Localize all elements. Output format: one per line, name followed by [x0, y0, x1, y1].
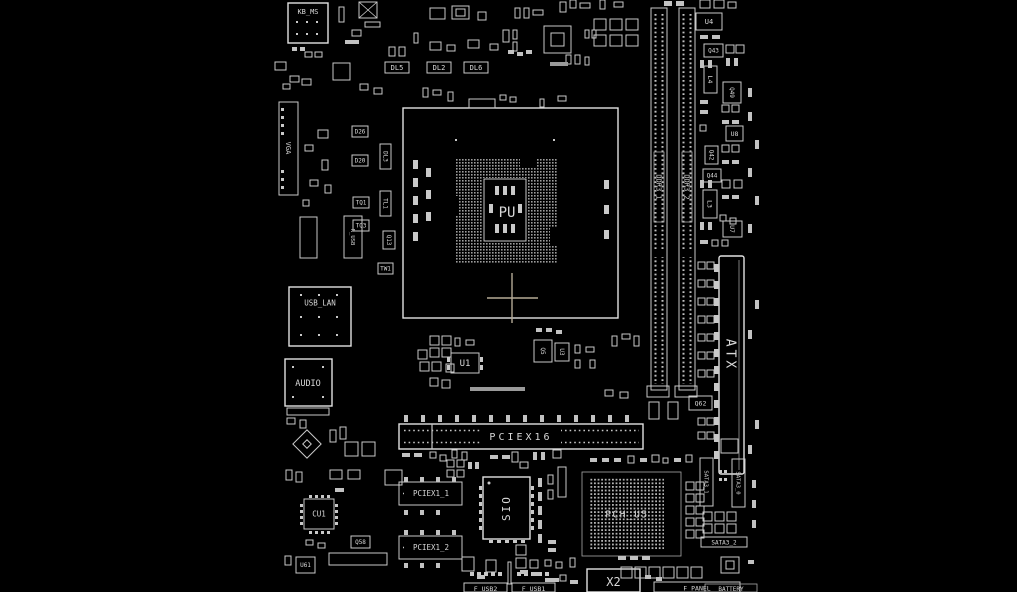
svg-text:U7: U7	[728, 225, 736, 233]
sata-ports: SATA3_1 SATA3_0 SATA3_2	[700, 458, 747, 547]
part-tq1: TQ1	[353, 197, 369, 208]
audio-connector: AUDIO	[285, 359, 332, 415]
part-q42: Q42	[705, 146, 718, 164]
svg-text:Q13: Q13	[385, 235, 392, 246]
part-q43: Q43	[704, 44, 723, 57]
svg-text:Q42: Q42	[707, 150, 714, 161]
sio-chip: SIO	[479, 477, 534, 543]
u61-chip: U61	[296, 557, 315, 573]
svg-text:DL5: DL5	[391, 64, 404, 72]
part-q58: Q58	[351, 536, 370, 548]
u61-label: U61	[300, 562, 311, 569]
ddr3-2-label: DDR3_2	[683, 174, 691, 199]
svg-text:Q44: Q44	[707, 173, 718, 180]
battery-holder: BATTERY	[705, 584, 757, 592]
part-q13: Q13	[383, 231, 395, 249]
atx-connector: ATX	[714, 256, 744, 474]
svg-text:U8: U8	[731, 130, 739, 138]
u1-label: U1	[460, 359, 471, 369]
passive-components-fill	[292, 1, 759, 584]
part-l4: L4	[704, 66, 717, 93]
f-panel-label: F_PANEL	[683, 584, 710, 592]
part-tl1: TL1	[380, 191, 391, 216]
sio-label: SIO	[500, 495, 513, 521]
crosshair-icon	[487, 273, 538, 323]
svg-text:DL2: DL2	[433, 64, 446, 72]
x2-label: X2	[606, 575, 620, 589]
svg-text:Q43: Q43	[708, 48, 719, 55]
svg-text:TW1: TW1	[380, 266, 391, 273]
ddr3-1-label: DDR3_1	[655, 174, 663, 199]
svg-text:DL6: DL6	[470, 64, 483, 72]
ddr3-slot-2: DDR3_2	[675, 8, 697, 397]
pciex1-1-slot: PCIEX1_1	[399, 482, 462, 505]
svg-text:Q62: Q62	[695, 399, 707, 407]
part-u4: U4	[696, 13, 722, 30]
svg-text:D26: D26	[355, 129, 366, 136]
atx-label: ATX	[722, 339, 737, 371]
svg-text:U4: U4	[705, 18, 713, 26]
part-dl6: DL6	[464, 62, 488, 73]
part-q5: Q5	[534, 340, 552, 362]
cu1-chip: CU1	[300, 495, 338, 534]
cpu-label: PU	[499, 205, 516, 221]
svg-text:Q58: Q58	[355, 539, 366, 546]
pciex1-2-slot: PCIEX1_2	[399, 536, 462, 559]
sata3-0-label: SATA3_0	[735, 471, 741, 494]
svg-text:L4: L4	[706, 76, 714, 84]
usb-lan-label: USB_LAN	[304, 299, 336, 308]
crystal-and-diamond	[293, 2, 377, 458]
part-q49: Q49	[723, 82, 741, 103]
part-tw1: TW1	[378, 263, 393, 274]
svg-text:DL3: DL3	[381, 151, 388, 162]
cu1-label: CU1	[312, 510, 326, 519]
pciex1-2-label: PCIEX1_2	[413, 543, 449, 552]
part-d26: D26	[352, 126, 368, 137]
pch-chip: PCH_U5	[582, 472, 681, 556]
part-l3: L3	[703, 190, 717, 218]
svg-text:TL1: TL1	[381, 198, 388, 209]
board-canvas: PU DDR3_1 DDR3_2	[0, 0, 1017, 592]
pciex16-slot: PCIEX16	[399, 424, 643, 449]
f-usb2-header: F_USB2	[464, 572, 507, 592]
u1-chip: U1	[447, 353, 483, 373]
part-dl5: DL5	[385, 62, 409, 73]
part-tq3: TQ3	[353, 220, 369, 231]
svg-text:U3: U3	[558, 348, 565, 356]
vga-label: VGA	[284, 142, 292, 155]
kb-ms-connector: KB_MS	[288, 3, 328, 43]
part-d20: D20	[352, 155, 368, 166]
part-u7: U7	[723, 221, 742, 237]
battery-label: BATTERY	[718, 586, 744, 592]
svg-text:L3: L3	[706, 200, 714, 208]
f-usb1-label: F_USB1	[522, 585, 546, 592]
f-usb2-label: F_USB2	[474, 585, 498, 592]
part-u3: U3	[555, 343, 569, 361]
svg-text:D20: D20	[355, 158, 366, 165]
pch-label: PCH_U5	[605, 509, 648, 520]
board-diagram: PU DDR3_1 DDR3_2	[0, 0, 1017, 592]
svg-text:Q49: Q49	[728, 87, 735, 98]
audio-label: AUDIO	[295, 379, 321, 389]
memory-slots: DDR3_1 DDR3_2	[647, 8, 697, 397]
pciex1-1-label: PCIEX1_1	[413, 489, 449, 498]
part-dl2: DL2	[427, 62, 451, 73]
cpu-socket: PU	[403, 108, 618, 323]
part-u8: U8	[726, 126, 743, 141]
svg-text:TQ1: TQ1	[356, 200, 367, 207]
part-dl3: DL3	[380, 144, 391, 169]
part-q62: Q62	[689, 396, 712, 410]
pciex16-label: PCIEX16	[489, 432, 552, 443]
svg-text:TQ3: TQ3	[356, 223, 367, 230]
usb-lan-connector: USB_LAN	[289, 287, 351, 346]
major-ics: SIO PCH_U5 U1 CU1 U61	[296, 353, 681, 573]
ddr3-slot-1: DDR3_1	[647, 8, 669, 397]
sata3-2-label: SATA3_2	[711, 540, 737, 547]
kb-ms-label: KB_MS	[297, 8, 318, 16]
svg-text:Q5: Q5	[539, 347, 546, 355]
vga-connector: VGA	[279, 102, 298, 195]
